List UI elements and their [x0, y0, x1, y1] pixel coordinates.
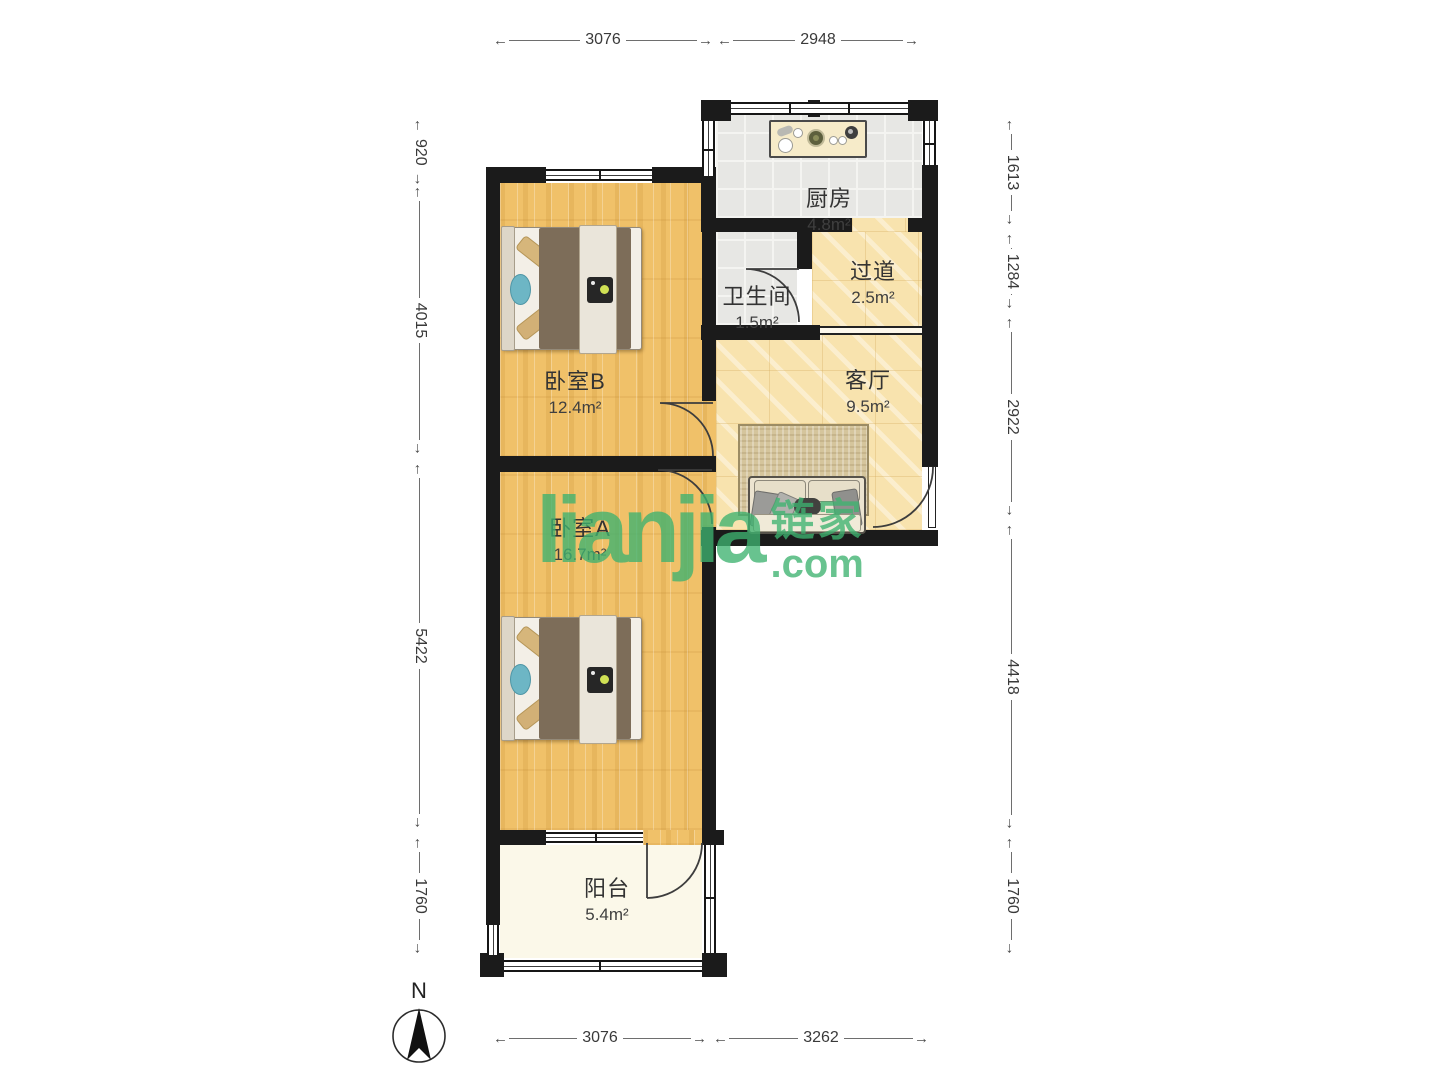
arrow-right-icon: → [413, 940, 428, 957]
window [546, 169, 652, 181]
dim-value: 2948 [795, 31, 841, 49]
wall-pillar [480, 953, 504, 977]
window [504, 960, 702, 972]
arrow-left-icon: ← [492, 1031, 509, 1046]
dim-value: 1613 [1003, 150, 1021, 196]
room-label-bedroom-a: 卧室A 16.7m² [549, 511, 611, 565]
watermark-suffix: .com [770, 544, 864, 584]
dim-top-2: ← 2948 → [716, 29, 920, 51]
dim-value: 1760 [1003, 873, 1021, 919]
arrow-left-icon: ← [413, 117, 428, 134]
dim-right-4: ← 4418 → [1001, 522, 1023, 832]
dim-right-5: ← 1760 → [1001, 835, 1023, 957]
burner-icon [838, 136, 847, 145]
arrow-left-icon: ← [1005, 315, 1020, 332]
dim-left-1: ← 920 → [409, 117, 431, 181]
room-area: 5.4m² [584, 905, 630, 925]
compass: N [382, 978, 462, 1073]
arrow-right-icon: → [1005, 211, 1020, 228]
room-label-hallway: 过道 2.5m² [850, 254, 896, 308]
dim-value: 4015 [411, 298, 429, 344]
floor-kitchen-doorway [852, 218, 908, 232]
dim-value: 1760 [411, 873, 429, 919]
dim-top-1: ← 3076 → [492, 29, 714, 51]
arrow-left-icon: ← [413, 461, 428, 478]
room-label-bathroom: 卫生间 1.5m² [722, 279, 791, 333]
room-area: 4.8m² [806, 215, 852, 235]
room-area: 2.5m² [850, 288, 896, 308]
dim-bottom-1: ← 3076 → [492, 1027, 708, 1049]
arrow-right-icon: → [1005, 815, 1020, 832]
arrow-left-icon: ← [413, 835, 428, 852]
room-name: 卧室B [544, 364, 606, 396]
compass-needle-icon [407, 1008, 431, 1060]
window [923, 121, 936, 165]
sofa-seat [753, 514, 861, 532]
sink-bowl-icon [778, 138, 793, 153]
dim-value: 3262 [798, 1029, 844, 1047]
arrow-right-icon: → [697, 33, 714, 48]
wall-segment [922, 232, 938, 467]
bed-tray [587, 277, 613, 303]
room-name: 厨房 [806, 181, 852, 213]
window [546, 832, 643, 843]
window [487, 925, 499, 955]
arrow-right-icon: → [1005, 295, 1020, 312]
dim-value: 920 [411, 134, 429, 171]
arrow-right-icon: → [1005, 502, 1020, 519]
wall-pillar [701, 100, 731, 121]
arrow-left-icon: ← [712, 1031, 729, 1046]
arrow-right-icon: → [1005, 940, 1020, 957]
arrow-right-icon: → [691, 1031, 708, 1046]
arrow-left-icon: ← [1005, 117, 1020, 134]
room-name: 过道 [850, 254, 896, 286]
arrow-left-icon: ← [1005, 231, 1020, 248]
floor-doorway [643, 830, 702, 845]
wall-pillar [702, 953, 727, 977]
dim-value: 3076 [580, 31, 626, 49]
bed-tray [587, 667, 613, 693]
room-name: 阳台 [584, 871, 630, 903]
sofa-pouf [794, 498, 821, 515]
floor-doorway [702, 401, 716, 457]
arrow-right-icon: → [913, 1031, 930, 1046]
wall-segment [908, 218, 938, 232]
dim-left-4: ← 1760 → [409, 835, 431, 957]
wall-segment [486, 167, 500, 845]
bed-cushion [510, 274, 531, 305]
room-area: 9.5m² [845, 397, 891, 417]
arrow-left-icon: ← [492, 33, 509, 48]
dim-value: 4418 [1003, 654, 1021, 700]
pass-through-opening [820, 326, 922, 335]
room-area: 16.7m² [549, 545, 611, 565]
room-area: 12.4m² [544, 398, 606, 418]
room-label-balcony: 阳台 5.4m² [584, 871, 630, 925]
dim-right-3: ← 2922 → [1001, 315, 1023, 519]
wall-segment [486, 845, 500, 925]
dim-bottom-2: ← 3262 → [712, 1027, 930, 1049]
room-area: 1.5m² [722, 313, 791, 333]
plant-icon [809, 131, 823, 145]
arrow-left-icon: ← [413, 184, 428, 201]
dim-value: 1284 [1003, 249, 1021, 295]
wall-segment [797, 232, 812, 269]
compass-north-label: N [411, 978, 427, 1003]
wall-segment [702, 830, 724, 845]
bed-bedroom-b [502, 227, 642, 350]
dim-right-1: ← 1613 → [1001, 117, 1023, 228]
wall-segment [702, 527, 716, 830]
dim-value: 2922 [1003, 394, 1021, 440]
arrow-left-icon: ← [716, 33, 733, 48]
sofa [748, 476, 866, 534]
arrow-right-icon: → [413, 814, 428, 831]
room-name: 客厅 [845, 363, 891, 395]
arrow-right-icon: → [903, 33, 920, 48]
faucet-icon [776, 125, 794, 138]
dim-right-2: ← 1284 → [1001, 231, 1023, 312]
room-label-bedroom-b: 卧室B 12.4m² [544, 364, 606, 418]
dim-left-3: ← 5422 → [409, 461, 431, 831]
floor-doorway [702, 472, 716, 527]
arrow-left-icon: ← [1005, 835, 1020, 852]
room-label-kitchen: 厨房 4.8m² [806, 181, 852, 235]
arrow-right-icon: → [413, 440, 428, 457]
wall-segment [486, 830, 546, 845]
burner-icon [829, 136, 838, 145]
arrow-left-icon: ← [1005, 522, 1020, 539]
dim-value: 3076 [577, 1029, 623, 1047]
window [731, 102, 908, 115]
wall-segment [486, 167, 546, 183]
entry-door-leaf [928, 466, 936, 528]
wall-pillar [908, 100, 938, 121]
room-label-living: 客厅 9.5m² [845, 363, 891, 417]
stove-icon [845, 126, 858, 139]
sink-knob-icon [793, 128, 803, 138]
wall-segment [500, 456, 716, 472]
dim-left-2: ← 4015 → [409, 184, 431, 457]
kitchen-counter [769, 120, 867, 158]
dim-value: 5422 [411, 623, 429, 669]
room-name: 卧室A [549, 511, 611, 543]
floorplan-canvas: 厨房 4.8m² 过道 2.5m² 卫生间 1.5m² 客厅 9.5m² 卧室B… [0, 0, 1440, 1080]
room-name: 卫生间 [722, 279, 791, 311]
window [704, 845, 716, 953]
window [702, 121, 715, 176]
bed-cushion [510, 664, 531, 695]
bed-bedroom-a [502, 617, 642, 740]
